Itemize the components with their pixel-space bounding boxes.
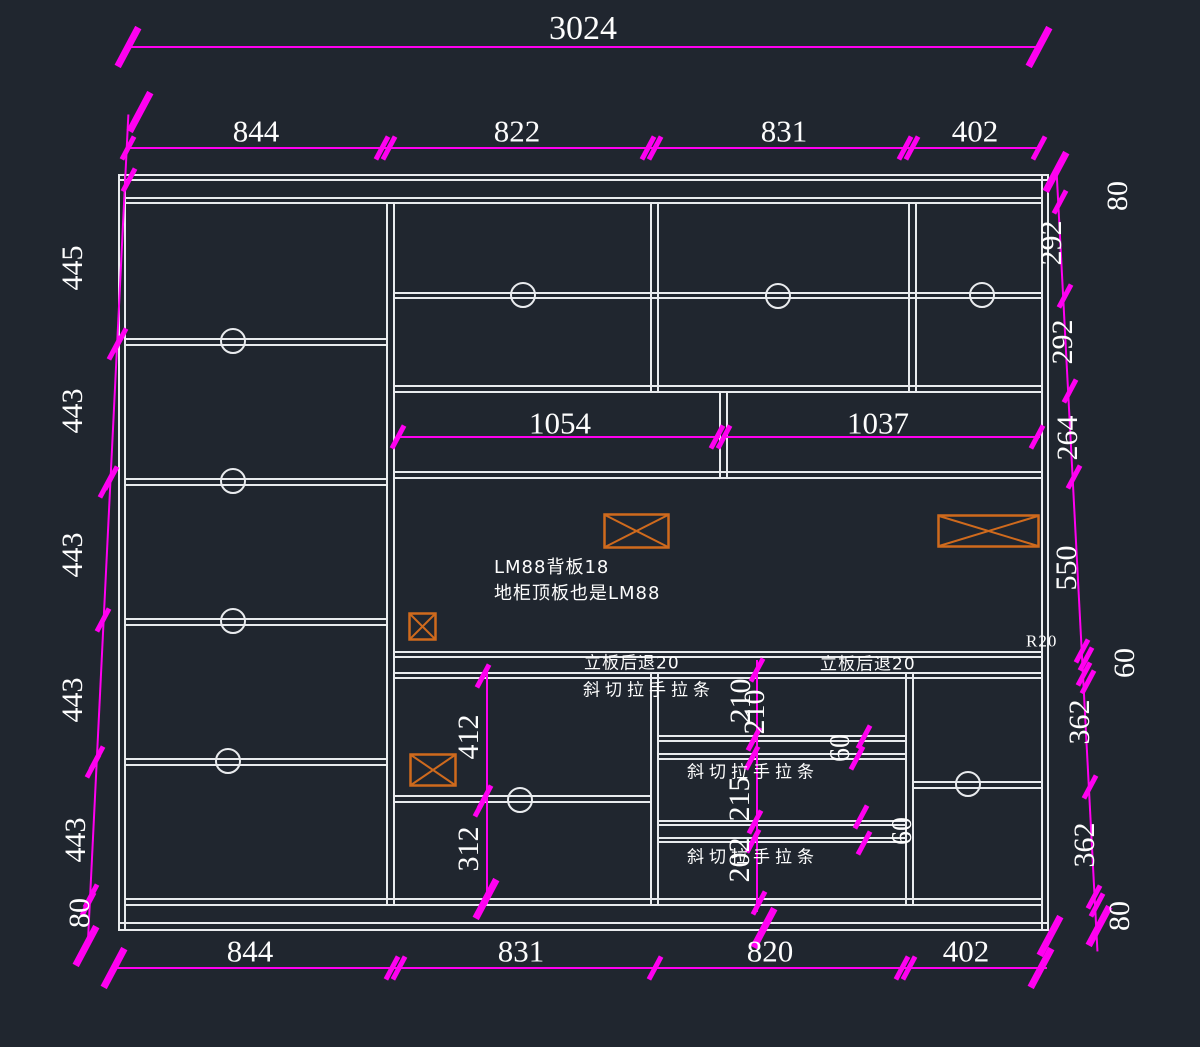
dimension-tick [751,890,768,915]
handle-circle [969,282,995,308]
dim-total-width: 3024 [549,12,617,46]
dim-gap-60a: 60 [827,734,855,762]
panel-line [912,672,914,904]
note-handle-strip-1: 斜切拉手拉条 [583,683,715,700]
dim-top-831: 831 [761,116,808,147]
panel-line [125,338,386,340]
panel-line [125,904,1041,906]
dim-right-362b: 362 [1070,823,1100,868]
panel-line [650,672,652,904]
panel-line [908,202,910,393]
panel-line [125,764,386,766]
note-handle-strip-3: 斜切拉手拉条 [687,850,819,867]
panel-line [905,672,907,904]
note-setback-right: 立板后退20 [820,657,916,674]
panel-line [394,656,1041,658]
panel-line [118,179,1048,181]
dim-left-445: 445 [58,246,88,291]
panel-line [394,471,1041,473]
panel-line [657,841,905,843]
dim-gap-60b: 60 [889,817,917,845]
panel-line [657,740,905,742]
dim-band-1054: 1054 [529,408,591,439]
dimension-tick [73,925,100,967]
dim-left-443d: 443 [61,818,91,863]
crossed-panel-box [937,514,1040,548]
dimension-tick [1052,189,1069,214]
panel-line [125,484,386,486]
dimension-tick [1062,378,1079,403]
dimension-tick [856,724,873,749]
panel-line [915,202,917,393]
dim-drawer-215: 215 [725,777,755,822]
panel-line [125,618,386,620]
panel-line [657,672,659,904]
cad-drawing-canvas: 3024 844 822 831 402 844 831 820 402 105… [0,0,1200,1047]
panel-line [1041,174,1043,931]
handle-circle [507,787,533,813]
panel-line [394,477,1041,479]
panel-line [657,824,905,826]
dim-left-443a: 443 [58,389,88,434]
dimension-tick [98,473,115,498]
dimension-tick [856,830,873,855]
panel-line [650,202,652,393]
dim-left-443b: 443 [58,533,88,578]
handle-circle [955,771,981,797]
panel-line [657,753,905,755]
panel-line [125,197,1041,199]
panel-line [657,735,905,737]
panel-line [125,478,386,480]
dim-top-822: 822 [494,116,541,147]
dimension-line [87,114,130,947]
crossed-panel-box [603,513,670,549]
dim-bottom-844: 844 [227,936,274,967]
dimension-tick [475,663,492,688]
panel-line [125,344,386,346]
dim-bottom-402: 402 [943,936,990,967]
panel-line [657,820,905,822]
dim-right-80b: 80 [1105,901,1135,931]
dimension-tick [127,91,154,133]
dim-412: 412 [454,715,484,760]
panel-line [125,898,1041,900]
panel-line [394,385,1041,387]
dim-bottom-831: 831 [498,936,545,967]
dim-right-292a: 292 [1037,221,1067,266]
panel-line [386,202,388,904]
dimension-tick [1057,283,1074,308]
dim-drawer-210b: 210 [740,690,770,735]
panel-line [657,758,905,760]
panel-line [124,174,126,931]
panel-line [394,651,1041,653]
dim-right-362a: 362 [1065,700,1095,745]
panel-line [1047,174,1049,931]
handle-circle [765,283,791,309]
dim-right-264: 264 [1053,416,1083,461]
panel-line [394,297,1041,299]
dim-right-292b: 292 [1048,320,1078,365]
panel-line [394,677,1041,679]
panel-line [125,624,386,626]
handle-circle [510,282,536,308]
panel-line [125,202,1041,204]
dim-left-443c: 443 [58,678,88,723]
handle-circle [220,608,246,634]
note-handle-strip-2: 斜切拉手拉条 [687,765,819,782]
handle-circle [220,328,246,354]
panel-line [393,202,395,904]
dim-right-80t: 80 [1103,181,1133,211]
handle-circle [215,748,241,774]
note-backboard: LM88背板18 [494,559,609,577]
panel-line [118,922,1048,924]
dim-bottom-820: 820 [747,936,794,967]
dim-top-402: 402 [952,116,999,147]
note-setback-left: 立板后退20 [584,656,680,673]
dim-right-60: 60 [1110,648,1140,678]
handle-circle [220,468,246,494]
crossed-panel-box [408,612,437,641]
note-topboard: 地柜顶板也是LM88 [494,585,660,603]
panel-line [394,672,1041,674]
panel-line [118,174,1048,176]
panel-line [394,391,1041,393]
dim-left-80: 80 [65,898,95,928]
panel-line [394,292,1041,294]
dim-band-1037: 1037 [847,408,909,439]
dim-312: 312 [454,827,484,872]
dimension-tick [85,753,102,778]
panel-line [125,758,386,760]
panel-line [657,202,659,393]
crossed-panel-box [409,753,457,787]
panel-line [118,929,1048,931]
dim-top-844: 844 [233,116,280,147]
dim-right-550: 550 [1052,546,1082,591]
radius-label: R20 [1026,633,1057,650]
